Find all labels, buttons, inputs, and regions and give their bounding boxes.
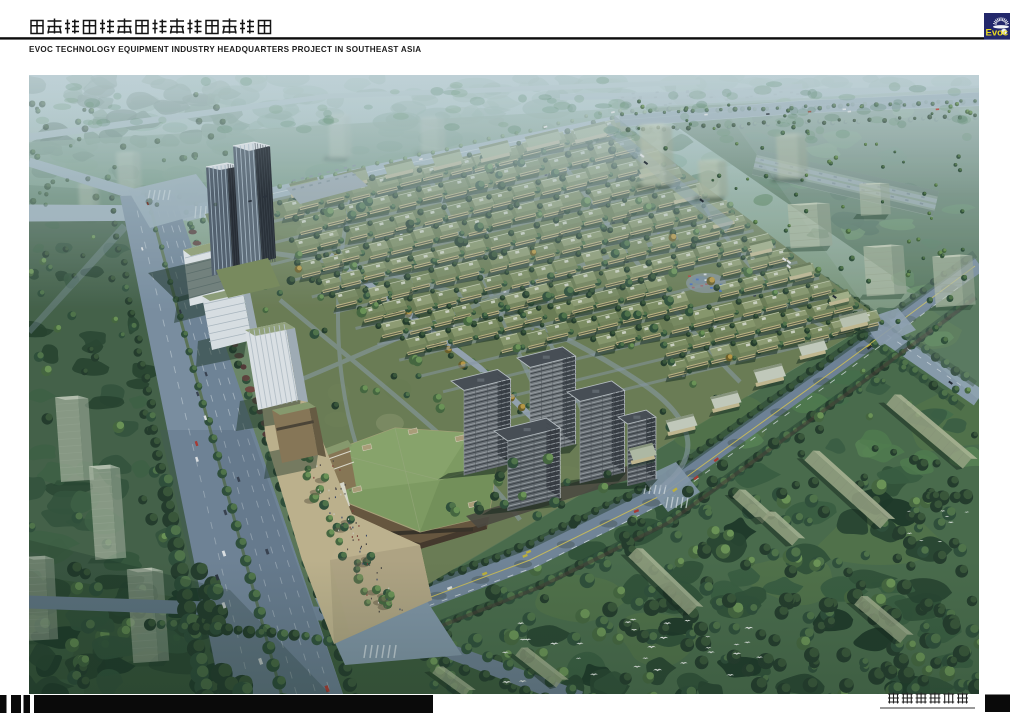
svg-text:Evoc: Evoc: [986, 28, 1009, 39]
svg-text:EVOC TECHNOLOGY EQUIPMENT INDU: EVOC TECHNOLOGY EQUIPMENT INDUSTRY HEADQ…: [29, 45, 421, 54]
